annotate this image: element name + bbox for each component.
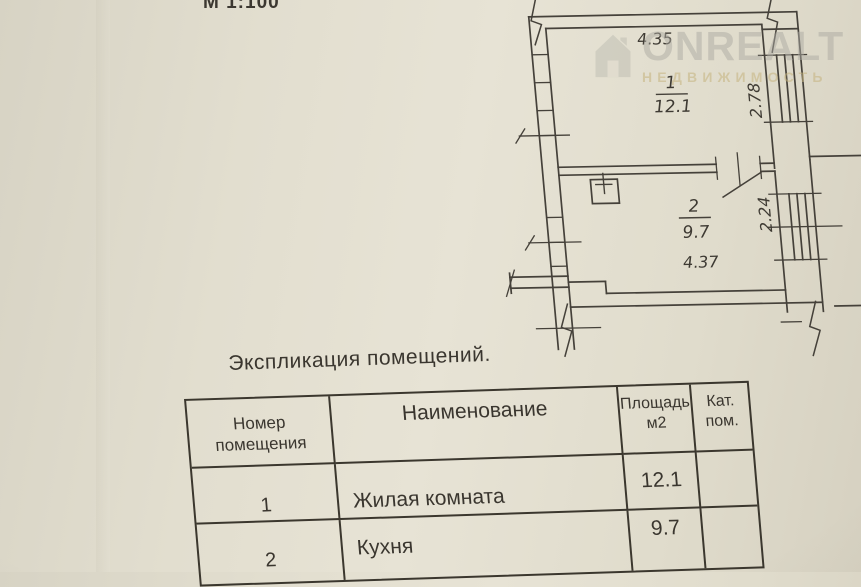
watermark-subtitle: НЕДВИЖИМОСТЬ <box>642 69 844 85</box>
watermark: ONREALT НЕДВИЖИМОСТЬ <box>590 24 861 85</box>
watermark-brand: ONREALT <box>642 24 844 68</box>
house-icon <box>590 28 636 82</box>
table-cell-category <box>701 507 762 569</box>
room2-area-label: 9.7 <box>682 222 711 242</box>
room2-number-label: 2 <box>688 197 701 217</box>
scale-label: М 1:100 <box>203 0 280 14</box>
explication-title: Экспликация помещений. <box>228 343 491 376</box>
room2-height-dim-label: 2.24 <box>754 196 776 232</box>
door-swing-line <box>721 172 763 197</box>
table-cell-number: 2 <box>197 520 346 585</box>
vent-shaft-symbol <box>590 173 620 203</box>
table-cell-number: 1 <box>192 464 341 525</box>
table-header-area: Площадь м2 <box>618 385 697 455</box>
table-cell-area: 12.1 <box>624 452 702 510</box>
table-header-name: Наименование <box>330 387 624 464</box>
wall-hatch-ticks <box>532 54 567 266</box>
table-cell-area: 9.7 <box>628 508 706 570</box>
table-header-category: Кат. пом. <box>691 383 753 453</box>
explication-table: Номер помещения Наименование Площадь м2 … <box>184 381 765 587</box>
room1-area-label: 12.1 <box>653 97 693 118</box>
table-cell-name: Кухня <box>341 511 634 580</box>
table-cell-category <box>697 451 758 509</box>
photo-document: { "scale_label": "М 1:100", "watermark":… <box>0 0 861 572</box>
room1-height-dim-label: 2.78 <box>744 83 766 119</box>
paper-crease <box>96 0 110 572</box>
room2-width-dim-label: 4.37 <box>682 252 720 272</box>
table-cell-name: Жилая комната <box>336 455 629 520</box>
table-header-room-number: Номер помещения <box>186 396 336 468</box>
wall-stub-left <box>504 269 569 296</box>
